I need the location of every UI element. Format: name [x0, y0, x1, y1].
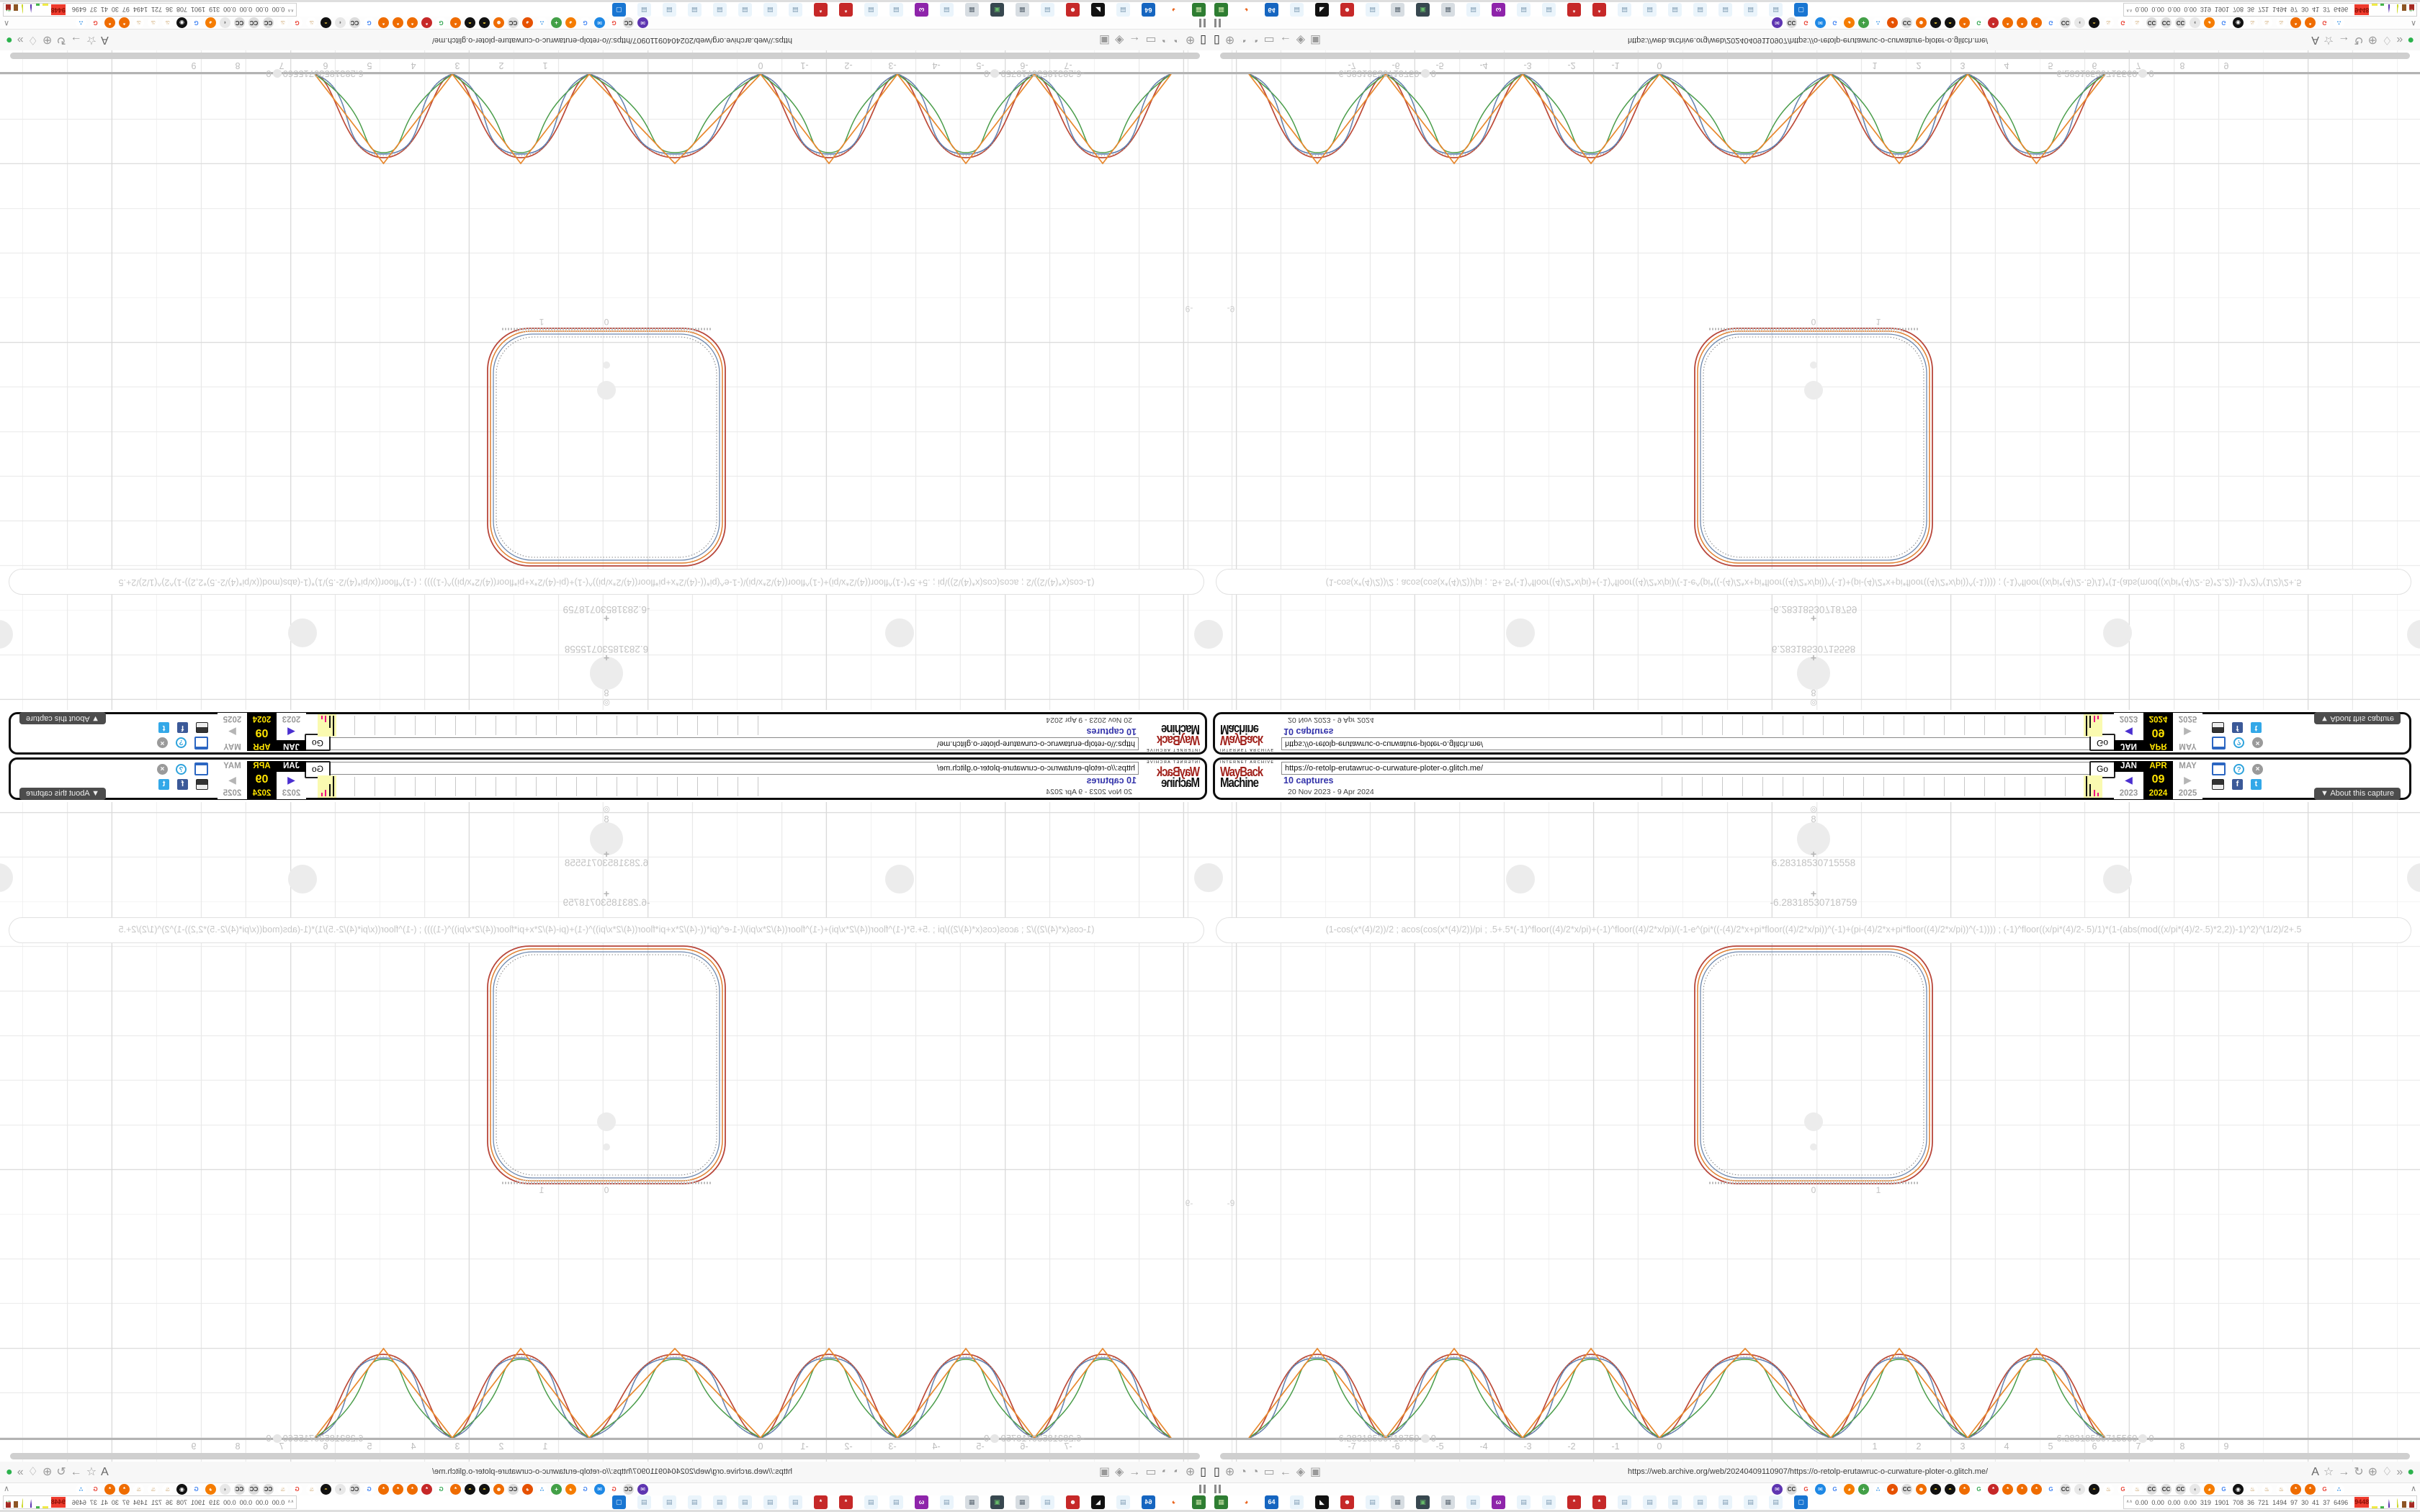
capture-day[interactable]: 09 [247, 724, 277, 740]
tab-favicon[interactable]: ▤ [940, 1495, 954, 1509]
tab-favicon[interactable]: ▤ [1643, 3, 1657, 17]
extension-icon[interactable]: ◓ [1930, 17, 1941, 28]
navbar-icon[interactable]: ◈ [1296, 31, 1305, 48]
navbar-icon[interactable]: ● [6, 1464, 13, 1481]
navbar-icon[interactable]: » [2396, 1464, 2403, 1481]
squircle-knob-handle[interactable] [1804, 1112, 1823, 1131]
extension-icon[interactable]: CC [508, 1484, 519, 1495]
squircle-dot-handle[interactable] [1810, 361, 1817, 369]
tab-favicon[interactable]: ◣ [1315, 3, 1329, 17]
extension-icon[interactable]: + [551, 1484, 562, 1495]
tab-favicon[interactable]: ◕ [1167, 1495, 1180, 1509]
extension-icon[interactable]: ◕ [522, 17, 533, 28]
extension-icon[interactable]: ♨ [162, 1484, 173, 1495]
navbar-icon[interactable]: ▭ [1145, 1464, 1156, 1481]
month-may[interactable]: MAY [2173, 740, 2202, 751]
prev-capture-arrow[interactable]: ◀ [2114, 772, 2143, 788]
close-icon[interactable]: × [157, 738, 168, 749]
tab-favicon[interactable]: ▤ [789, 1495, 802, 1509]
year-2024[interactable]: 2024 [247, 788, 277, 799]
tab-favicon[interactable]: 64 [1142, 3, 1155, 17]
extension-icon[interactable]: * [421, 1484, 432, 1495]
wayback-logo[interactable]: INTERNET ARCHIVE WayBack Machine [1139, 761, 1200, 787]
captures-link[interactable]: 10 captures [1046, 726, 1137, 737]
extension-icon[interactable]: * [2305, 17, 2316, 28]
navbar-icon[interactable]: A [101, 1464, 109, 1481]
tab-favicon[interactable]: ▤ [637, 3, 651, 17]
month-apr[interactable]: APR [247, 740, 277, 751]
extension-icon[interactable]: ♨ [277, 1484, 288, 1495]
year-2025[interactable]: 2025 [2173, 788, 2202, 799]
facebook-share-icon[interactable]: f [2232, 779, 2243, 790]
navbar-icon[interactable]: → [71, 1464, 82, 1481]
extension-icon[interactable]: G [580, 1484, 591, 1495]
extension-icon[interactable]: G [191, 1484, 202, 1495]
navbar-icon[interactable]: ▭ [1145, 31, 1156, 48]
tab-favicon[interactable]: ▤ [1744, 3, 1757, 17]
extension-icon[interactable]: ◓ [2089, 17, 2099, 28]
month-apr[interactable]: APR [2143, 740, 2173, 751]
extension-icon[interactable]: G [2319, 17, 2330, 28]
tab-favicon[interactable]: ◣ [1091, 3, 1105, 17]
extension-icon[interactable]: CC [1786, 1484, 1797, 1495]
extension-icon[interactable]: * [378, 17, 389, 28]
extension-icon[interactable]: ◖ [2074, 17, 2085, 28]
capture-timeline[interactable] [1424, 775, 2108, 798]
extension-icon[interactable]: ◕ [2204, 17, 2215, 28]
squircle-dot-handle[interactable] [603, 361, 610, 369]
wayback-url-input[interactable] [1281, 762, 2091, 775]
extension-icon[interactable]: CC [2161, 1484, 2172, 1495]
extension-icon[interactable]: ∴ [2334, 17, 2344, 28]
month-jan[interactable]: JAN [2114, 761, 2143, 772]
tab-favicon[interactable]: 64 [1265, 1495, 1278, 1509]
extension-icon[interactable]: CC [508, 17, 519, 28]
next-capture-arrow[interactable]: ▶ [2173, 724, 2202, 740]
edge-knob-handle[interactable] [2407, 863, 2420, 892]
edge-knob-handle[interactable] [0, 863, 13, 892]
tab-favicon[interactable]: ▤ [1643, 1495, 1657, 1509]
tab-favicon[interactable]: ☻ [1340, 3, 1354, 17]
edge-knob-handle[interactable] [2407, 620, 2420, 649]
extension-icon[interactable]: * [2017, 1484, 2027, 1495]
sysmon-chevrons-icon[interactable]: ∧∧ [287, 1500, 294, 1504]
extension-icon[interactable]: ◉ [176, 17, 187, 28]
navbar-icon[interactable]: ▭ [1264, 31, 1275, 48]
navbar-icon[interactable]: ◔ [1240, 1464, 1247, 1481]
pause-icon[interactable] [1214, 19, 1221, 27]
navbar-icon[interactable]: ☆ [2323, 31, 2334, 48]
tab-favicon[interactable]: ▤ [637, 1495, 651, 1509]
tab-favicon[interactable]: ▤ [713, 3, 727, 17]
extension-icon[interactable]: * [1959, 1484, 1970, 1495]
help-icon[interactable]: ? [2233, 738, 2244, 749]
navbar-icon[interactable]: ▣ [1310, 1464, 1321, 1481]
about-this-capture-button[interactable]: ▼ About this capture [2314, 712, 2401, 724]
tab-favicon[interactable]: ▤ [1718, 1495, 1732, 1509]
month-jan[interactable]: JAN [2114, 740, 2143, 751]
right-panel-knob-handle[interactable] [288, 865, 317, 894]
year-2025[interactable]: 2025 [218, 788, 247, 799]
extension-icon[interactable]: ◕ [1887, 1484, 1898, 1495]
extension-icon[interactable]: ✉ [594, 1484, 605, 1495]
save-capture-icon[interactable] [2212, 779, 2224, 790]
navbar-icon[interactable]: ↻ [56, 31, 66, 48]
extension-icon[interactable]: ◉ [2233, 1484, 2244, 1495]
extension-icon[interactable]: * [407, 1484, 418, 1495]
tab-favicon[interactable]: ▤ [889, 3, 903, 17]
left-panel-knob-handle[interactable] [1506, 618, 1535, 647]
help-icon[interactable]: ? [176, 738, 187, 749]
tab-favicon[interactable]: ▤ [688, 3, 702, 17]
extension-icon[interactable]: * [2002, 1484, 2013, 1495]
navbar-icon[interactable]: ◈ [1296, 1464, 1305, 1481]
about-this-capture-button[interactable]: ▼ About this capture [2314, 788, 2401, 800]
browser-url-text[interactable]: https://web.archive.org/web/202404091109… [1613, 1467, 1988, 1476]
tab-favicon[interactable]: ▤ [738, 3, 752, 17]
tab-favicon[interactable]: ☻ [1340, 1495, 1354, 1509]
navbar-icon[interactable]: ◈ [1115, 1464, 1124, 1481]
tab-favicon[interactable]: ▤ [1542, 3, 1556, 17]
extension-icon[interactable]: G [364, 17, 375, 28]
extension-icon[interactable]: ✉ [1772, 17, 1783, 28]
tab-favicon[interactable]: ω [915, 3, 928, 17]
tab-favicon[interactable]: ω [915, 1495, 928, 1509]
extension-icon[interactable]: ◓ [321, 17, 331, 28]
extension-icon[interactable]: ◖ [220, 1484, 230, 1495]
extension-icon[interactable]: ◓ [1945, 1484, 1955, 1495]
tab-favicon[interactable]: ▤ [1466, 1495, 1480, 1509]
tab-favicon[interactable]: ▤ [864, 3, 878, 17]
extension-icon[interactable]: G [90, 1484, 101, 1495]
extension-icon[interactable]: ◓ [1945, 17, 1955, 28]
navbar-icon[interactable]: ⊕ [1225, 31, 1234, 48]
twitter-share-icon[interactable]: t [2251, 722, 2262, 733]
browser-url-text[interactable]: https://web.archive.org/web/202404091109… [432, 1467, 807, 1476]
tab-favicon[interactable]: ☻ [1066, 3, 1080, 17]
extension-icon[interactable]: G [2218, 1484, 2229, 1495]
tab-favicon[interactable]: ▤ [1718, 3, 1732, 17]
navbar-icon[interactable]: A [101, 31, 109, 48]
navbar-icon[interactable]: A [2311, 1464, 2319, 1481]
extension-icon[interactable]: ∴ [537, 17, 547, 28]
capture-day[interactable]: 09 [2143, 772, 2173, 788]
navbar-icon[interactable]: ☆ [86, 1464, 97, 1481]
year-2024[interactable]: 2024 [2143, 713, 2173, 724]
squircle-knob-handle[interactable] [597, 1112, 616, 1131]
extension-icon[interactable]: G [2045, 1484, 2056, 1495]
tab-favicon[interactable]: ▤ [763, 3, 777, 17]
help-icon[interactable]: ? [176, 764, 187, 775]
extension-icon[interactable]: G [1829, 1484, 1840, 1495]
capture-timeline[interactable] [1424, 714, 2108, 737]
month-may[interactable]: MAY [2173, 761, 2202, 772]
extension-icon[interactable]: ∴ [1873, 1484, 1883, 1495]
tab-favicon[interactable]: ▣ [990, 1495, 1004, 1509]
pause-icon[interactable] [1199, 1485, 1206, 1493]
axis-handle-left[interactable]: -6.283185307187590 [1292, 68, 1479, 79]
navbar-icon[interactable]: ♢ [2382, 31, 2392, 48]
extension-icon[interactable]: * [393, 17, 403, 28]
extension-icon[interactable]: ◕ [205, 1484, 216, 1495]
wayback-logo[interactable]: INTERNET ARCHIVE WayBack Machine [1220, 726, 1281, 752]
tab-favicon[interactable]: ω [1492, 1495, 1505, 1509]
axis-handle-right[interactable]: 6.283185307155600 [2012, 68, 2199, 79]
extension-icon[interactable]: CC [2060, 1484, 2071, 1495]
extension-icon[interactable]: * [119, 1484, 130, 1495]
extension-icon[interactable]: ♨ [2247, 1484, 2258, 1495]
tab-favicon[interactable]: ▤ [1618, 1495, 1631, 1509]
tab-favicon[interactable]: ▦ [1192, 3, 1206, 17]
extension-icon[interactable]: G [1973, 1484, 1984, 1495]
sysmon-chevrons-icon[interactable]: ∧∧ [2126, 1500, 2133, 1504]
extension-icon[interactable]: G [1829, 17, 1840, 28]
facebook-share-icon[interactable]: f [177, 722, 188, 733]
extension-icon[interactable]: G [609, 1484, 619, 1495]
browser-window-icon[interactable] [194, 762, 208, 775]
tab-favicon[interactable]: * [1592, 3, 1606, 17]
tab-favicon[interactable]: * [1567, 3, 1581, 17]
navbar-icon[interactable]: ☆ [2323, 1464, 2334, 1481]
extension-icon[interactable]: ◕ [522, 1484, 533, 1495]
save-capture-icon[interactable] [196, 779, 208, 790]
year-2023[interactable]: 2023 [2114, 713, 2143, 724]
extension-icon[interactable]: ☻ [1916, 17, 1927, 28]
timeline-highlight[interactable] [2084, 714, 2102, 737]
axis-knob-icon[interactable] [2138, 69, 2147, 78]
tab-favicon[interactable]: ▦ [1016, 3, 1029, 17]
month-may[interactable]: MAY [218, 761, 247, 772]
navbar-icon[interactable]: ◔ [1252, 31, 1259, 48]
help-icon[interactable]: ? [2233, 764, 2244, 775]
timeline-highlight[interactable] [318, 775, 336, 798]
extension-icon[interactable]: ♨ [133, 1484, 144, 1495]
extension-icon[interactable]: ◖ [220, 17, 230, 28]
extension-icon[interactable]: ♨ [306, 1484, 317, 1495]
tab-favicon[interactable]: ▤ [1116, 1495, 1130, 1509]
navbar-icon[interactable]: ◈ [1115, 31, 1124, 48]
extension-icon[interactable]: CC [2161, 17, 2172, 28]
pause-icon[interactable] [1214, 1485, 1221, 1493]
right-panel-knob-handle[interactable] [288, 618, 317, 647]
navbar-icon[interactable]: ↻ [2354, 1464, 2363, 1481]
extension-icon[interactable]: CC [2175, 1484, 2186, 1495]
extension-icon[interactable]: ♨ [148, 1484, 158, 1495]
tab-favicon[interactable]: * [839, 1495, 853, 1509]
extension-icon[interactable]: CC [623, 1484, 634, 1495]
prev-capture-arrow[interactable]: ◀ [277, 772, 306, 788]
edge-knob-handle[interactable] [1194, 620, 1223, 649]
tab-favicon[interactable]: ω [1492, 3, 1505, 17]
axis-knob-icon[interactable] [1421, 1434, 1430, 1443]
navbar-icon[interactable]: ▯ [1214, 1464, 1220, 1481]
navbar-icon[interactable]: ⊕ [1186, 31, 1195, 48]
browser-window-icon[interactable] [2212, 737, 2226, 750]
extension-icon[interactable]: G [1801, 1484, 1811, 1495]
axis-knob-icon[interactable] [1421, 69, 1430, 78]
navbar-icon[interactable]: ▯ [1200, 31, 1206, 48]
capture-day[interactable]: 09 [247, 772, 277, 788]
extension-icon[interactable]: G [1973, 17, 1984, 28]
tab-favicon[interactable]: ▦ [1214, 1495, 1228, 1509]
collapse-chevron-icon[interactable]: ∧ [2411, 1484, 2416, 1493]
tab-favicon[interactable]: ▢ [1794, 3, 1808, 17]
tab-favicon[interactable]: ▤ [1542, 1495, 1556, 1509]
extension-icon[interactable]: G [609, 17, 619, 28]
extension-icon[interactable]: ✉ [594, 17, 605, 28]
extension-icon[interactable]: CC [2060, 17, 2071, 28]
extension-icon[interactable]: ✉ [1815, 1484, 1826, 1495]
navbar-icon[interactable]: ▭ [1264, 1464, 1275, 1481]
axis-handle-right[interactable]: 6.283185307155600 [2012, 1433, 2199, 1444]
extension-icon[interactable]: CC [248, 17, 259, 28]
tab-favicon[interactable]: ▤ [1041, 3, 1054, 17]
tab-favicon[interactable]: ▦ [1441, 1495, 1455, 1509]
tab-favicon[interactable]: ▤ [1693, 1495, 1707, 1509]
capture-timeline[interactable] [312, 714, 996, 737]
extension-icon[interactable]: * [2017, 17, 2027, 28]
year-2023[interactable]: 2023 [277, 713, 306, 724]
navbar-icon[interactable]: ▯ [1214, 31, 1220, 48]
navbar-icon[interactable]: ▣ [1099, 31, 1110, 48]
left-panel-knob-handle[interactable] [885, 618, 914, 647]
extension-icon[interactable]: CC [248, 1484, 259, 1495]
prev-capture-arrow[interactable]: ◀ [277, 724, 306, 740]
tab-favicon[interactable]: ▦ [965, 1495, 979, 1509]
extension-icon[interactable]: ◖ [335, 17, 346, 28]
extension-icon[interactable]: G [2218, 17, 2229, 28]
wayback-url-input[interactable] [329, 737, 1139, 750]
extension-icon[interactable]: * [2031, 17, 2042, 28]
extension-icon[interactable]: ♨ [2276, 17, 2287, 28]
extension-icon[interactable]: ♨ [162, 17, 173, 28]
axis-handle-right[interactable]: 6.283185307155600 [221, 68, 408, 79]
facebook-share-icon[interactable]: f [2232, 722, 2243, 733]
close-icon[interactable]: × [2252, 764, 2263, 775]
tab-favicon[interactable]: ▤ [789, 3, 802, 17]
tab-favicon[interactable]: ◕ [1240, 3, 1253, 17]
navbar-icon[interactable]: ◔ [1161, 31, 1168, 48]
year-2025[interactable]: 2025 [2173, 713, 2202, 724]
extension-icon[interactable]: ♨ [2132, 17, 2143, 28]
tab-favicon[interactable]: ☻ [1066, 1495, 1080, 1509]
extension-icon[interactable]: ◕ [1887, 17, 1898, 28]
extension-icon[interactable]: CC [234, 17, 245, 28]
tab-favicon[interactable]: * [814, 3, 828, 17]
year-2023[interactable]: 2023 [277, 788, 306, 799]
navbar-icon[interactable]: → [71, 31, 82, 48]
tab-favicon[interactable]: ▤ [864, 1495, 878, 1509]
wayback-url-input[interactable] [329, 762, 1139, 775]
extension-icon[interactable]: CC [349, 1484, 360, 1495]
extension-icon[interactable]: ◕ [565, 17, 576, 28]
extension-icon[interactable]: ◕ [205, 17, 216, 28]
squircle-knob-handle[interactable] [1804, 381, 1823, 400]
year-2024[interactable]: 2024 [247, 713, 277, 724]
extension-icon[interactable]: CC [263, 17, 274, 28]
navbar-icon[interactable]: ⊕ [1225, 1464, 1234, 1481]
navbar-icon[interactable]: ↻ [56, 1464, 66, 1481]
year-2023[interactable]: 2023 [2114, 788, 2143, 799]
navbar-icon[interactable]: ⊕ [42, 1464, 52, 1481]
dial-icon[interactable]: ◎ [599, 804, 614, 814]
tab-favicon[interactable]: ▤ [1769, 1495, 1783, 1509]
tab-favicon[interactable]: ▦ [1391, 3, 1404, 17]
year-2025[interactable]: 2025 [218, 713, 247, 724]
collapse-chevron-icon[interactable]: ∧ [4, 1484, 9, 1493]
dial-icon[interactable]: ◎ [599, 698, 614, 708]
extension-icon[interactable]: ♨ [2262, 17, 2272, 28]
tab-favicon[interactable]: ▤ [1668, 3, 1682, 17]
browser-url-text[interactable]: https://web.archive.org/web/202404091109… [1613, 36, 1988, 45]
timeline-highlight[interactable] [318, 714, 336, 737]
next-capture-arrow[interactable]: ▶ [218, 724, 247, 740]
navbar-icon[interactable]: ⊕ [2368, 31, 2378, 48]
tab-favicon[interactable]: ▤ [1744, 1495, 1757, 1509]
navbar-icon[interactable]: ← [1280, 1464, 1291, 1481]
extension-icon[interactable]: * [119, 17, 130, 28]
navbar-icon[interactable]: ☆ [86, 31, 97, 48]
tab-favicon[interactable]: ▦ [965, 3, 979, 17]
navbar-icon[interactable]: ◔ [1240, 31, 1247, 48]
tab-favicon[interactable]: ◣ [1315, 1495, 1329, 1509]
sysmon-chevrons-icon[interactable]: ∧∧ [287, 8, 294, 12]
navbar-icon[interactable]: → [2338, 31, 2349, 48]
collapse-chevron-icon[interactable]: ∧ [2411, 19, 2416, 28]
navbar-icon[interactable]: » [17, 1464, 24, 1481]
tab-favicon[interactable]: ▤ [763, 1495, 777, 1509]
extension-icon[interactable]: CC [234, 1484, 245, 1495]
tab-favicon[interactable]: ▣ [1416, 1495, 1430, 1509]
extension-icon[interactable]: ♨ [2132, 1484, 2143, 1495]
axis-knob-icon[interactable] [990, 69, 999, 78]
tab-favicon[interactable]: ▤ [738, 1495, 752, 1509]
navbar-icon[interactable]: → [2338, 1464, 2349, 1481]
tab-favicon[interactable]: ▤ [1517, 1495, 1531, 1509]
navbar-icon[interactable]: » [17, 31, 24, 48]
navbar-icon[interactable]: ● [2407, 1464, 2414, 1481]
axis-handle-left[interactable]: -6.283185307187590 [941, 1433, 1128, 1444]
right-panel-knob-handle[interactable] [2103, 618, 2132, 647]
extension-icon[interactable]: G [90, 17, 101, 28]
extension-icon[interactable]: CC [623, 17, 634, 28]
tab-favicon[interactable]: ▤ [1668, 1495, 1682, 1509]
month-apr[interactable]: APR [247, 761, 277, 772]
extension-icon[interactable]: CC [263, 1484, 274, 1495]
about-this-capture-button[interactable]: ▼ About this capture [19, 788, 106, 800]
save-capture-icon[interactable] [196, 722, 208, 733]
navbar-icon[interactable]: ⊕ [1186, 1464, 1195, 1481]
extension-icon[interactable]: * [2290, 1484, 2301, 1495]
extension-icon[interactable]: ◓ [479, 1484, 490, 1495]
tab-favicon[interactable]: ▤ [1366, 1495, 1379, 1509]
extension-icon[interactable]: CC [2175, 17, 2186, 28]
wayback-url-input[interactable] [1281, 737, 2091, 750]
extension-icon[interactable]: ◕ [1844, 17, 1855, 28]
extension-icon[interactable]: ◕ [565, 1484, 576, 1495]
navbar-icon[interactable]: ◔ [1173, 31, 1180, 48]
extension-icon[interactable]: + [1858, 17, 1869, 28]
extension-icon[interactable]: ◖ [2190, 1484, 2200, 1495]
axis-knob-icon[interactable] [273, 69, 282, 78]
navbar-icon[interactable]: ▣ [1099, 1464, 1110, 1481]
navbar-icon[interactable]: ◔ [1161, 1464, 1168, 1481]
dial-icon[interactable]: ◎ [1806, 698, 1821, 708]
twitter-share-icon[interactable]: t [2251, 779, 2262, 790]
extension-icon[interactable]: CC [1786, 17, 1797, 28]
tab-favicon[interactable]: ◣ [1091, 1495, 1105, 1509]
navbar-icon[interactable]: ← [1280, 31, 1291, 48]
